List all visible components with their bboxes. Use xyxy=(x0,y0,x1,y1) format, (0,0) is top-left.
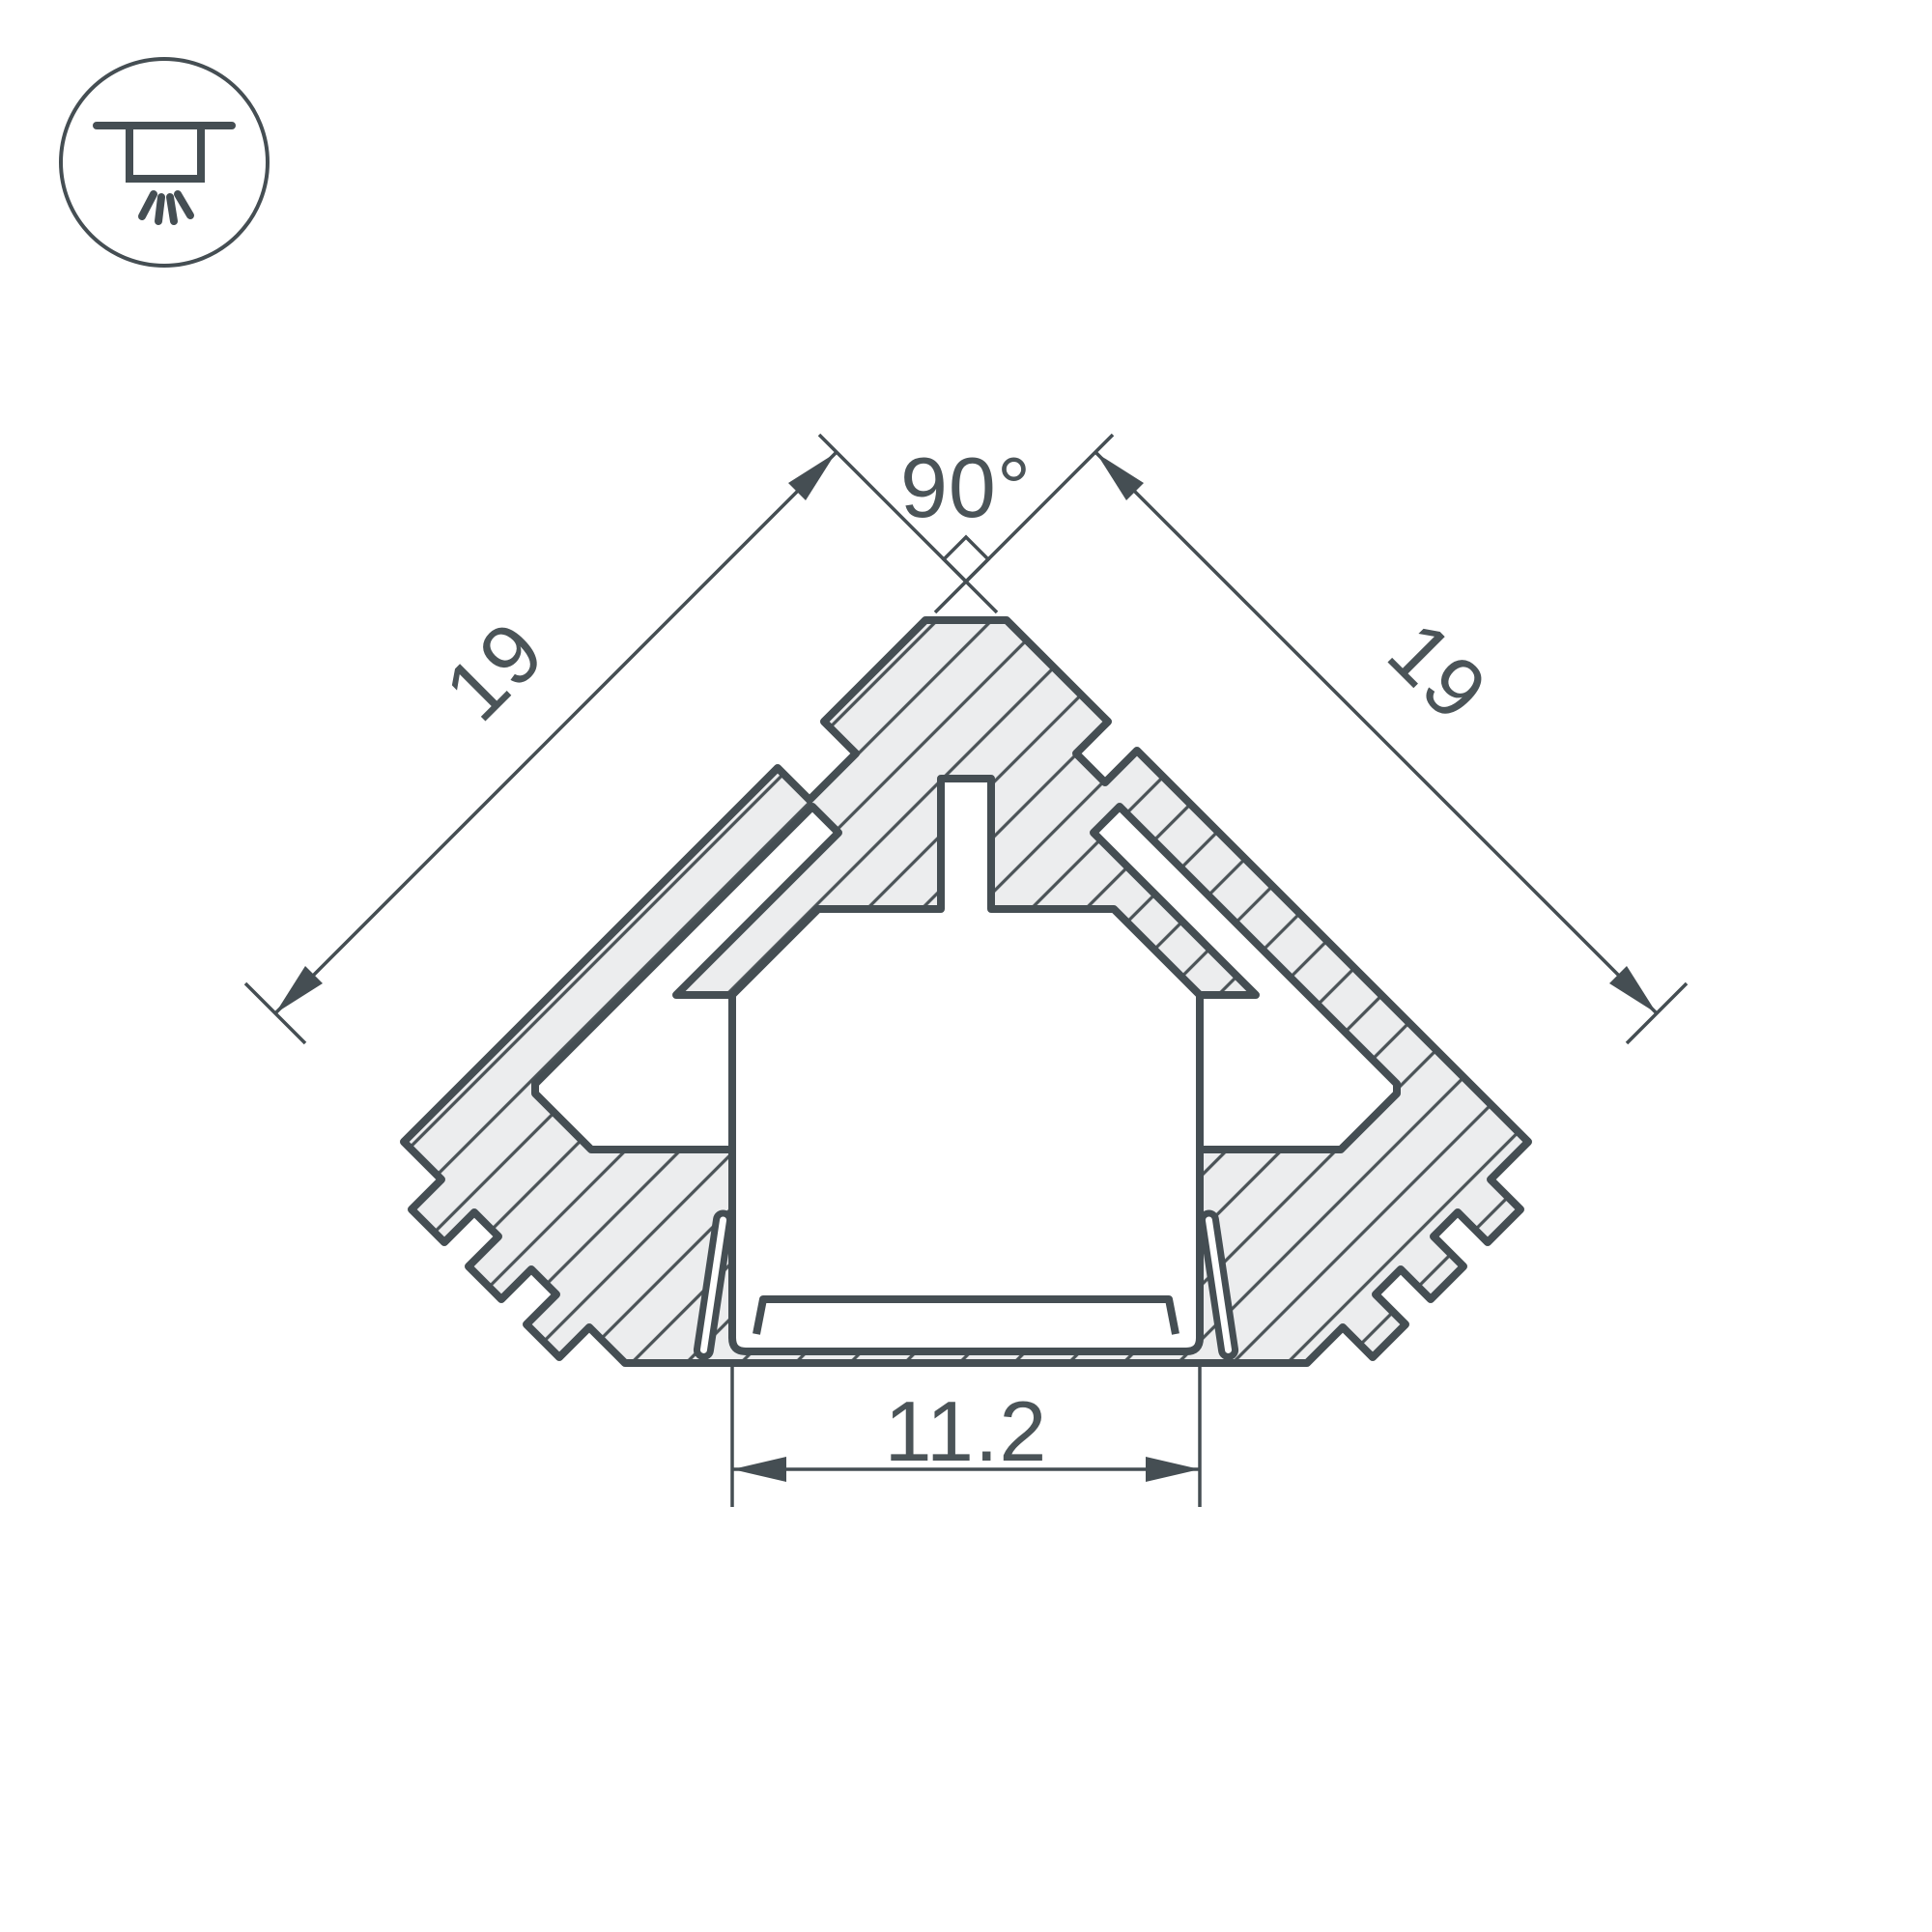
icon-circle xyxy=(61,59,268,266)
diffuser-plate xyxy=(756,1299,1176,1334)
dimensions xyxy=(245,435,1687,1507)
technical-drawing-page: 90° 19 19 11.2 xyxy=(0,0,1932,1932)
label-side-right-19: 19 xyxy=(1370,603,1506,739)
arrowhead xyxy=(1146,1457,1200,1482)
profile-material-hatched xyxy=(404,620,1528,1363)
icon-fixture xyxy=(97,126,232,179)
label-angle-90: 90° xyxy=(900,440,1032,535)
channel-clip-legs xyxy=(696,1212,1236,1357)
right-angle-mark xyxy=(944,537,988,582)
profile-drawing-canvas: 90° 19 19 11.2 xyxy=(0,0,1932,1932)
arrowhead xyxy=(732,1457,786,1482)
profile-cross-section xyxy=(404,620,1528,1363)
label-side-left-19: 19 xyxy=(426,603,562,739)
recessed-ceiling-light-icon xyxy=(61,59,268,266)
icon-light-rays xyxy=(142,194,190,221)
label-opening-11-2: 11.2 xyxy=(885,1383,1048,1479)
